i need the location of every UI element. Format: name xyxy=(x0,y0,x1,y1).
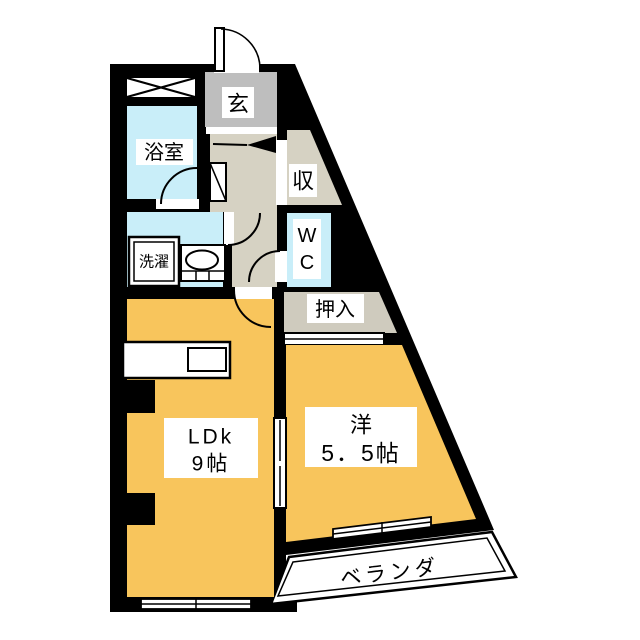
pipe-space xyxy=(127,78,195,97)
ldk: LDk 9帖 xyxy=(123,287,274,610)
floor-plan-page: ベランダ 浴室 玄 収 xyxy=(0,0,640,640)
wall-pillar-upper xyxy=(127,380,155,413)
western-room-size-label: 5．5帖 xyxy=(321,440,401,466)
entrance-label: 玄 xyxy=(227,92,249,117)
partition-sliding-door-icon xyxy=(274,418,286,508)
ldk-window-icon xyxy=(141,598,251,610)
storage-label: 収 xyxy=(292,169,314,194)
ldk-door-opening xyxy=(235,287,272,299)
ldk-size-label: 9帖 xyxy=(192,453,231,476)
entrance-door-leaf-icon xyxy=(215,28,224,71)
bathroom: 浴室 xyxy=(127,106,199,209)
storage-opening xyxy=(276,140,287,205)
toilet-label-c: C xyxy=(300,252,314,274)
storage-door-line xyxy=(213,144,247,145)
washroom-door-opening xyxy=(224,212,234,245)
western-room-label: 洋 xyxy=(350,413,372,438)
entrance-step xyxy=(206,127,277,134)
entrance-door-swing-icon xyxy=(221,29,260,68)
bathroom-door-opening xyxy=(156,199,199,209)
entrance: 玄 xyxy=(205,28,277,134)
laundry-label: 洗濯 xyxy=(139,254,169,271)
ldk-label: LDk xyxy=(188,426,234,449)
toilet-label-w: W xyxy=(298,225,317,247)
toilet-door-opening xyxy=(275,251,287,282)
floor-plan: ベランダ 浴室 玄 収 xyxy=(0,0,640,640)
bathroom-label: 浴室 xyxy=(144,141,184,164)
wall-pillar-lower xyxy=(127,493,155,525)
closet-label: 押入 xyxy=(315,298,355,321)
